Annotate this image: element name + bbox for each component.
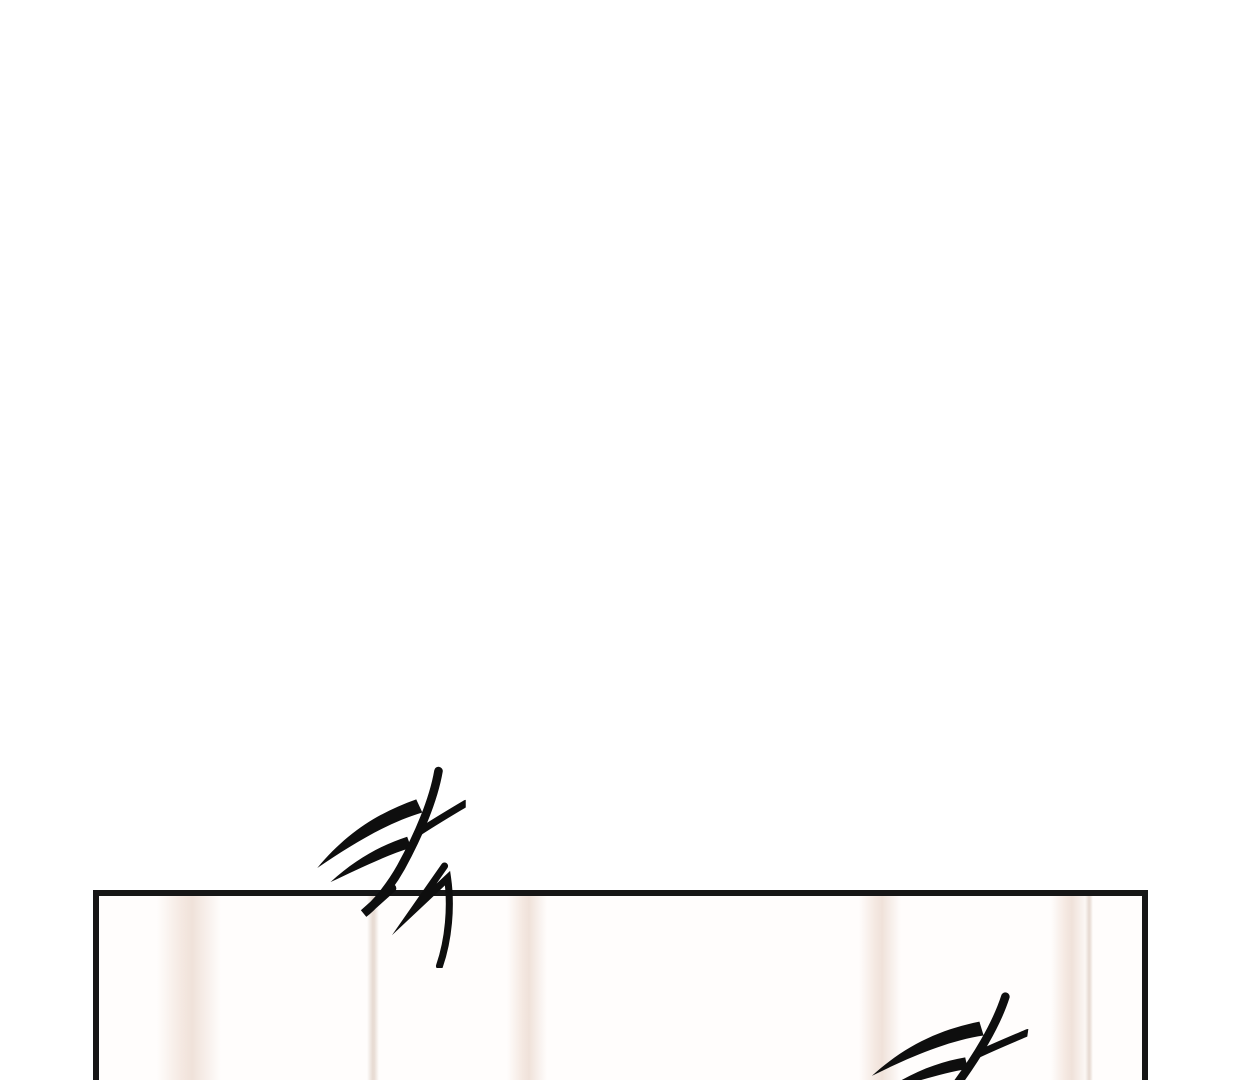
sfx-tak-1 xyxy=(314,766,466,968)
curtain-stripe xyxy=(157,896,221,1080)
sfx-tak-1-glyph xyxy=(314,766,466,968)
curtain-stripe xyxy=(507,896,547,1080)
curtain-stripe xyxy=(1051,896,1089,1080)
webtoon-page xyxy=(0,0,1241,1080)
curtain-stripe xyxy=(1085,896,1093,1080)
